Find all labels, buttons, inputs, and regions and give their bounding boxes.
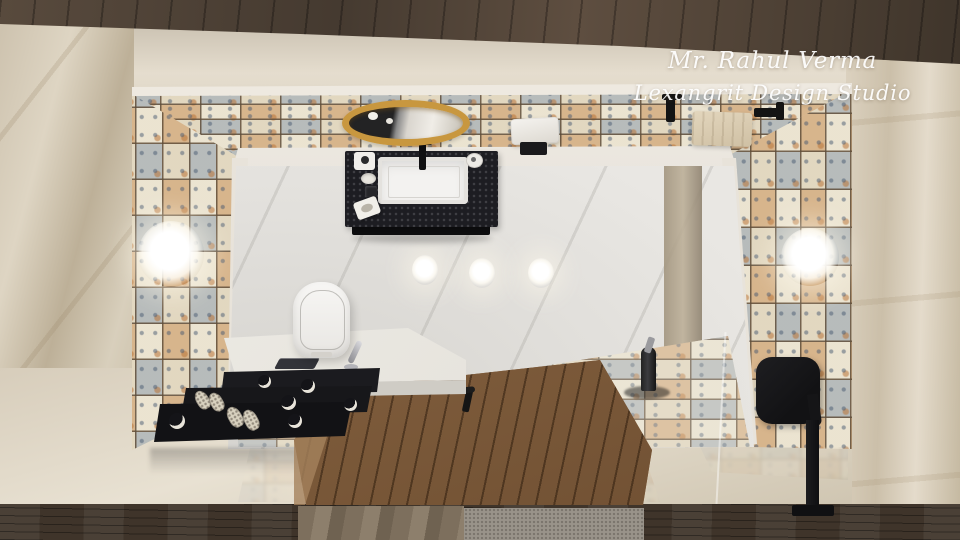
amenity-box — [365, 186, 377, 197]
drawer-knob — [281, 395, 296, 410]
drawer-knob — [344, 398, 357, 411]
drawer-knob — [258, 375, 271, 388]
sink-basin-inner — [388, 166, 460, 198]
round-dish-dot — [471, 157, 476, 162]
white-towel — [510, 117, 559, 145]
render-canvas: Mr. Rahul Verma Lexangrit Design Studio — [0, 0, 960, 540]
toilet-hinge — [311, 352, 332, 357]
shower-pole-base — [792, 505, 834, 516]
bottom-floor-concrete — [464, 508, 644, 540]
wall-sconce-right — [781, 228, 839, 286]
toilet-seat-line — [300, 290, 345, 350]
paper-holder — [520, 142, 547, 155]
mirror-reflection-dot — [368, 112, 378, 120]
ceiling-light-reflection-3 — [528, 258, 554, 288]
drawer-knob — [169, 413, 185, 429]
ceiling-light-reflection-2 — [469, 258, 495, 288]
drawer-knob — [301, 379, 315, 393]
watermark: Mr. Rahul Verma Lexangrit Design Studio — [600, 48, 945, 105]
wall-sconce-left — [138, 221, 204, 287]
amenity-dish — [361, 173, 376, 184]
drawer-knob — [288, 414, 302, 428]
watermark-studio-name: Lexangrit Design Studio — [600, 81, 945, 105]
beige-towel — [691, 111, 752, 147]
ceiling-light-reflection-1 — [412, 255, 438, 285]
bottom-floor-stone — [298, 506, 464, 540]
soap-pump — [361, 156, 369, 164]
mirror — [342, 100, 470, 146]
shower-pole — [806, 420, 819, 510]
watermark-client-name: Mr. Rahul Verma — [600, 48, 945, 74]
phone — [274, 358, 320, 369]
floor-faucet — [641, 347, 656, 391]
mirror-reflection-dot — [386, 118, 393, 124]
